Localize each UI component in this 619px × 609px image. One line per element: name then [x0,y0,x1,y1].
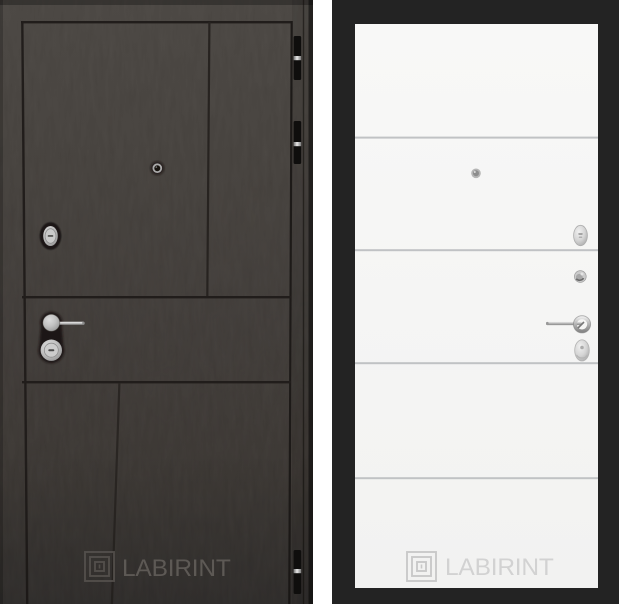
svg-text:LABIRINT: LABIRINT [445,554,554,581]
svg-text:LABIRINT: LABIRINT [122,555,231,582]
